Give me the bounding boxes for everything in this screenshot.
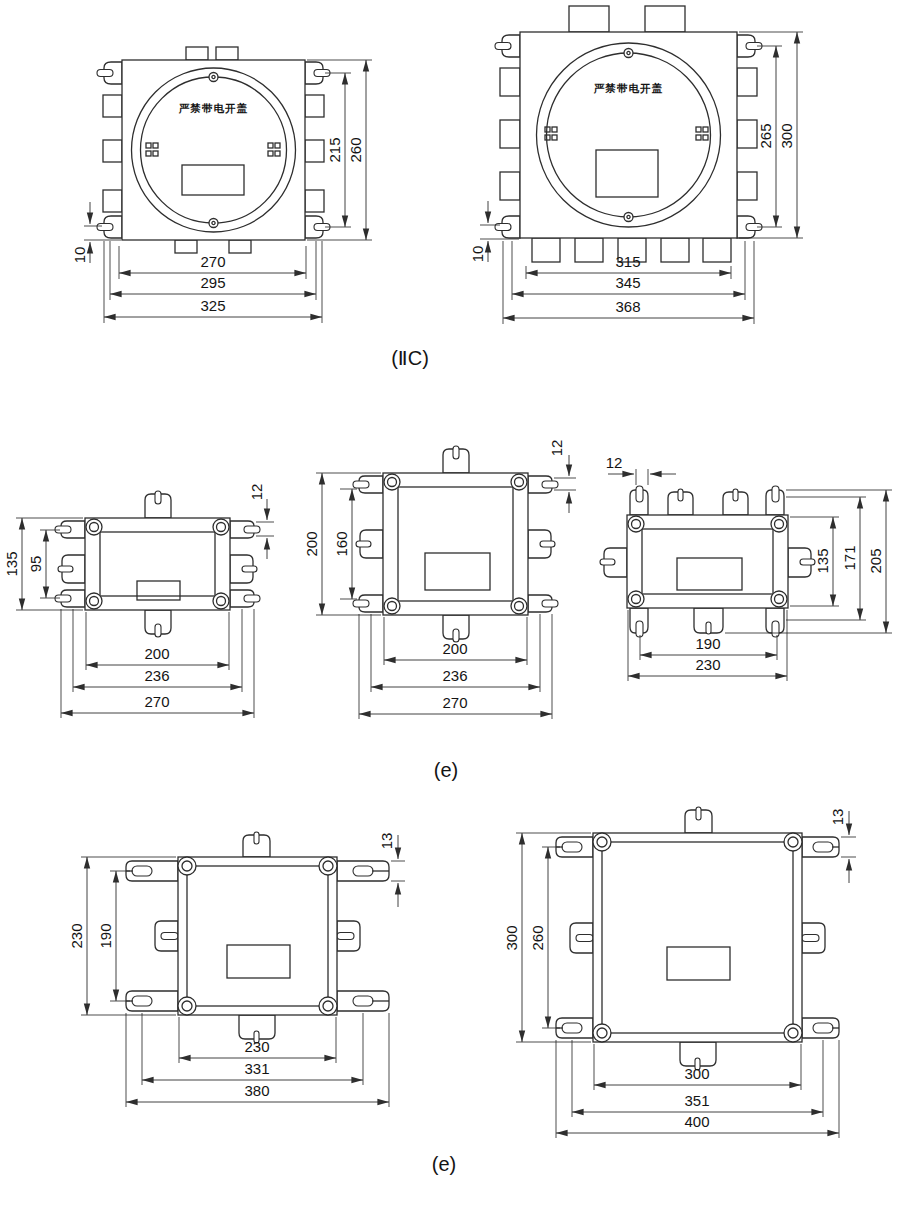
dim-inner-height: 160 <box>333 531 350 556</box>
dim-mid-width: 236 <box>442 667 467 684</box>
dim-ear-offset: 12 <box>248 484 265 501</box>
dim-outer-height: 300 <box>503 925 520 950</box>
dim-outer-width: 270 <box>144 693 169 710</box>
dim-ear-offset: 12 <box>548 440 565 457</box>
dim-inner-height: 260 <box>529 925 546 950</box>
dim-mid-height: 171 <box>841 545 858 570</box>
junction-box-iic-small: 严禁带电开盖 215 260 270 295 325 10 <box>71 47 372 323</box>
dim-outer-width: 325 <box>200 297 225 314</box>
dim-mid-width: 351 <box>684 1092 709 1109</box>
dim-inner-height: 135 <box>814 548 831 573</box>
cover-screw-bottom <box>624 213 633 222</box>
dim-mid-width: 236 <box>144 667 169 684</box>
dim-inner-width: 230 <box>244 1038 269 1055</box>
dim-outer-height: 205 <box>867 548 884 573</box>
dim-foot-offset: 10 <box>469 246 486 263</box>
dim-outer-width: 380 <box>244 1082 269 1099</box>
junction-box-e-large: 300 260 13 300 351 400 <box>503 807 856 1138</box>
cover-screw-top <box>624 49 633 58</box>
caption-e-bottom: (e) <box>432 1153 456 1175</box>
dim-mid-width: 295 <box>200 274 225 291</box>
caption-iic: (ⅡC) <box>391 347 429 369</box>
caption-e-mid: (e) <box>434 759 458 781</box>
warning-text: 严禁带电开盖 <box>593 82 663 94</box>
dim-outer-width: 230 <box>695 656 720 673</box>
dim-outer-height: 135 <box>3 551 20 576</box>
junction-box-e-medium: 230 190 13 230 331 380 <box>68 832 405 1107</box>
drawing-page: 严禁带电开盖 215 260 270 295 325 10 <box>0 0 900 1205</box>
dim-inner-height: 215 <box>326 137 343 162</box>
junction-box-e-square: 200 160 12 200 236 270 <box>303 440 576 719</box>
dim-inner-height: 190 <box>97 923 114 948</box>
dim-inner-width: 190 <box>695 635 720 652</box>
box-body <box>593 833 802 1042</box>
dim-inner-height: 265 <box>757 123 774 148</box>
box-body <box>178 857 337 1015</box>
box-body <box>122 60 305 240</box>
junction-box-e-small: 135 95 12 200 236 270 <box>3 484 274 718</box>
dim-inner-width: 300 <box>684 1065 709 1082</box>
box-body <box>383 473 528 615</box>
technical-drawing: 严禁带电开盖 215 260 270 295 325 10 <box>0 0 900 1205</box>
junction-box-e-wide: 12 135 171 205 190 230 <box>600 454 892 681</box>
dim-mid-width: 345 <box>615 274 640 291</box>
dim-outer-width: 368 <box>615 298 640 315</box>
dim-inner-width: 315 <box>615 253 640 270</box>
dim-inner-width: 200 <box>144 645 169 662</box>
dim-slot-width: 12 <box>606 454 623 471</box>
dim-ear-offset: 13 <box>378 833 395 850</box>
junction-box-iic-large: 严禁带电开盖 265 300 315 345 368 10 <box>469 6 803 324</box>
dim-inner-width: 200 <box>442 640 467 657</box>
cover-screw-bottom <box>209 219 218 228</box>
dim-outer-width: 400 <box>684 1113 709 1130</box>
dim-foot-offset: 10 <box>71 247 88 264</box>
dim-mid-width: 331 <box>244 1060 269 1077</box>
dim-outer-height: 230 <box>68 923 85 948</box>
dim-inner-width: 270 <box>200 253 225 270</box>
dim-outer-height: 200 <box>303 531 320 556</box>
dim-inner-height: 95 <box>27 556 44 573</box>
dim-outer-width: 270 <box>442 694 467 711</box>
dim-outer-height: 300 <box>778 123 795 148</box>
dim-ear-offset: 13 <box>829 809 846 826</box>
dim-outer-height: 260 <box>347 137 364 162</box>
cover-screw-top <box>209 73 218 82</box>
warning-text: 严禁带电开盖 <box>178 102 248 114</box>
